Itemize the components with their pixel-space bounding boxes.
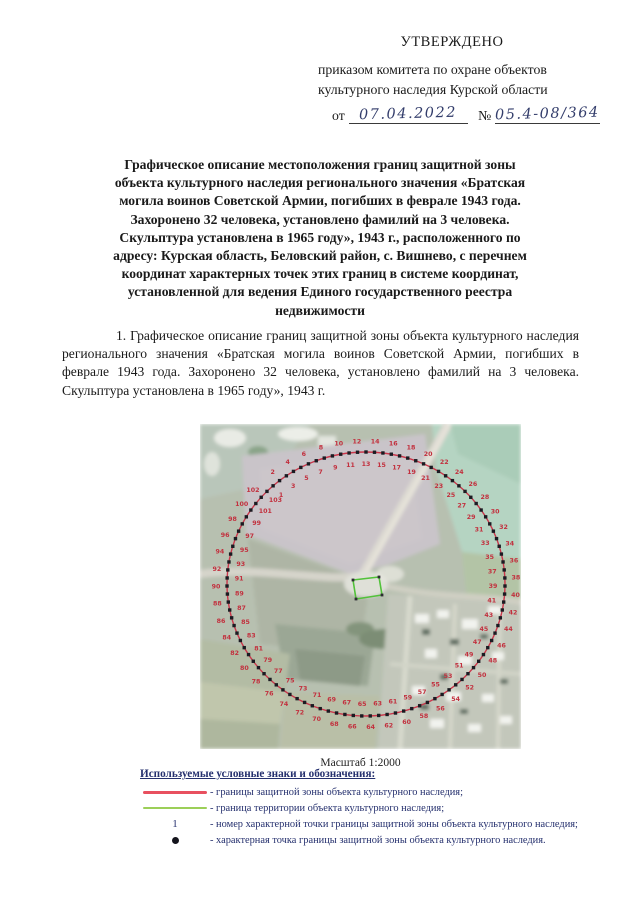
svg-text:60: 60 [402, 719, 411, 726]
svg-text:77: 77 [274, 668, 283, 675]
svg-text:16: 16 [389, 441, 398, 448]
svg-text:41: 41 [487, 598, 496, 605]
svg-text:4: 4 [286, 459, 291, 466]
legend-item-label: - границы защитной зоны объекта культурн… [210, 787, 463, 798]
svg-text:74: 74 [279, 701, 288, 708]
approval-date-handwritten: 07.04.2022 [359, 105, 457, 124]
legend-item-label: - номер характерной точки границы защитн… [210, 819, 578, 830]
svg-text:45: 45 [479, 626, 488, 633]
svg-text:68: 68 [330, 721, 339, 728]
svg-text:35: 35 [485, 554, 494, 561]
approval-order-line-2: культурного наследия Курской области [318, 80, 600, 100]
svg-text:52: 52 [465, 685, 474, 692]
svg-text:39: 39 [489, 583, 498, 590]
svg-text:90: 90 [212, 583, 221, 590]
title-line: координат характерных точек этих границ … [64, 265, 576, 283]
svg-text:15: 15 [377, 462, 386, 469]
svg-text:21: 21 [421, 475, 430, 482]
svg-text:6: 6 [302, 451, 307, 458]
approval-number-label: № [478, 108, 491, 124]
svg-text:17: 17 [392, 465, 401, 472]
svg-text:33: 33 [481, 540, 490, 547]
svg-text:12: 12 [352, 438, 361, 445]
svg-text:44: 44 [504, 626, 513, 633]
svg-text:31: 31 [475, 527, 484, 534]
svg-text:13: 13 [362, 461, 371, 468]
approval-block: УТВЕРЖДЕНО приказом комитета по охране о… [318, 34, 600, 124]
legend-item-zone-boundary: - границы защитной зоны объекта культурн… [140, 784, 610, 800]
svg-text:51: 51 [455, 663, 464, 670]
svg-text:40: 40 [511, 592, 520, 599]
svg-text:87: 87 [237, 605, 246, 612]
svg-text:76: 76 [265, 690, 274, 697]
svg-text:101: 101 [259, 508, 272, 515]
svg-text:102: 102 [246, 487, 259, 494]
svg-text:85: 85 [241, 619, 250, 626]
title-line: Скульптура установлена в 1965 году», 194… [64, 229, 576, 247]
document-title: Графическое описание местоположения гран… [64, 156, 576, 320]
paragraph-1: 1. Графическое описание границ защитной … [62, 327, 579, 400]
territory-line-sample [143, 807, 207, 810]
svg-text:27: 27 [457, 502, 466, 509]
legend-item-territory-boundary: - граница территории объекта культурного… [140, 800, 610, 816]
svg-text:32: 32 [499, 524, 508, 531]
svg-text:66: 66 [348, 724, 357, 731]
svg-text:8: 8 [319, 445, 323, 452]
title-line: Графическое описание местоположения гран… [64, 156, 576, 174]
svg-text:99: 99 [252, 520, 261, 527]
document-page: УТВЕРЖДЕНО приказом комитета по охране о… [0, 0, 640, 905]
svg-text:49: 49 [465, 651, 474, 658]
legend-item-label: - граница территории объекта культурного… [210, 803, 444, 814]
approval-date-field: 07.04.2022 [349, 107, 468, 124]
svg-text:54: 54 [451, 696, 460, 703]
svg-text:92: 92 [212, 566, 221, 573]
svg-text:103: 103 [269, 497, 282, 504]
svg-text:53: 53 [444, 673, 453, 680]
svg-text:43: 43 [484, 612, 493, 619]
title-line: Захоронено 32 человека, установлено фами… [64, 211, 576, 229]
approval-from-label: от [332, 108, 345, 124]
territory-line-symbol [140, 807, 210, 810]
zone-line-symbol [140, 791, 210, 794]
svg-text:2: 2 [271, 469, 275, 476]
svg-text:62: 62 [384, 722, 393, 729]
svg-text:80: 80 [240, 665, 249, 672]
approval-fields: от 07.04.2022 № 05.4-08/364 [318, 107, 600, 124]
svg-text:100: 100 [235, 501, 249, 508]
svg-text:48: 48 [488, 658, 497, 665]
svg-text:29: 29 [467, 514, 476, 521]
svg-text:50: 50 [478, 672, 487, 679]
title-line: адресу: Курская область, Беловский район… [64, 247, 576, 265]
svg-text:34: 34 [505, 540, 514, 547]
svg-text:18: 18 [407, 445, 416, 452]
title-line: могила воинов Советской Армии, погибших … [64, 192, 576, 210]
svg-text:26: 26 [468, 481, 477, 488]
svg-text:3: 3 [291, 483, 295, 490]
svg-text:19: 19 [407, 469, 416, 476]
zone-line-sample [143, 791, 207, 794]
legend-item-point-dot: - характерная точка границы защитной зон… [140, 832, 610, 848]
svg-text:20: 20 [424, 451, 433, 458]
legend-title: Используемые условные знаки и обозначени… [140, 768, 610, 780]
svg-text:67: 67 [342, 700, 351, 707]
legend-item-label: - характерная точка границы защитной зон… [210, 835, 546, 846]
svg-text:96: 96 [221, 532, 230, 539]
svg-text:64: 64 [366, 724, 375, 731]
approval-number-handwritten: 05.4-08/364 [495, 105, 600, 124]
svg-text:93: 93 [236, 561, 245, 568]
svg-text:89: 89 [235, 590, 244, 597]
svg-text:86: 86 [217, 618, 226, 625]
svg-text:22: 22 [440, 459, 449, 466]
svg-text:95: 95 [240, 547, 249, 554]
point-dot-sample [172, 837, 179, 844]
svg-text:56: 56 [436, 705, 445, 712]
svg-text:46: 46 [497, 642, 506, 649]
svg-text:98: 98 [228, 516, 237, 523]
approval-order-line-1: приказом комитета по охране объектов [318, 60, 600, 80]
svg-text:63: 63 [373, 701, 382, 708]
point-number-symbol: 1 [140, 819, 210, 830]
svg-text:10: 10 [334, 441, 343, 448]
svg-text:11: 11 [346, 462, 355, 469]
svg-text:36: 36 [510, 557, 519, 564]
svg-text:14: 14 [371, 438, 380, 445]
approval-title: УТВЕРЖДЕНО [318, 34, 586, 51]
title-line: недвижимости [64, 302, 576, 320]
title-line: установленной для ведения Единого госуда… [64, 283, 576, 301]
svg-text:5: 5 [304, 475, 308, 482]
svg-text:61: 61 [389, 698, 398, 705]
svg-text:9: 9 [333, 465, 337, 472]
svg-text:65: 65 [358, 701, 367, 708]
approval-number-field: 05.4-08/364 [495, 107, 600, 124]
svg-text:58: 58 [420, 713, 429, 720]
site-map: 1234567891011121314151617181920212223242… [200, 424, 521, 749]
svg-text:88: 88 [213, 601, 222, 608]
svg-text:24: 24 [455, 469, 464, 476]
svg-text:70: 70 [312, 716, 321, 723]
svg-text:97: 97 [245, 533, 254, 540]
svg-text:23: 23 [434, 483, 443, 490]
legend: Используемые условные знаки и обозначени… [140, 768, 610, 848]
point-number-sample: 1 [172, 819, 178, 830]
svg-text:82: 82 [230, 650, 239, 657]
svg-text:25: 25 [447, 492, 456, 499]
svg-text:78: 78 [252, 678, 261, 685]
svg-text:81: 81 [254, 645, 263, 652]
svg-text:91: 91 [235, 576, 244, 583]
svg-text:38: 38 [511, 575, 520, 582]
svg-text:37: 37 [488, 568, 497, 575]
svg-text:75: 75 [286, 677, 295, 684]
svg-text:79: 79 [263, 657, 272, 664]
svg-text:30: 30 [491, 508, 500, 515]
legend-item-point-number: 1 - номер характерной точки границы защи… [140, 816, 610, 832]
point-dot-symbol [140, 837, 210, 844]
svg-text:55: 55 [431, 682, 440, 689]
svg-text:42: 42 [509, 609, 518, 616]
svg-text:73: 73 [299, 685, 308, 692]
svg-text:69: 69 [327, 697, 336, 704]
svg-text:71: 71 [313, 692, 322, 699]
svg-text:94: 94 [216, 549, 225, 556]
svg-text:72: 72 [295, 709, 304, 716]
svg-text:47: 47 [473, 639, 482, 646]
svg-text:7: 7 [318, 469, 322, 476]
title-line: объекта культурного наследия регионально… [64, 174, 576, 192]
svg-text:59: 59 [403, 694, 412, 701]
svg-text:57: 57 [418, 689, 427, 696]
svg-text:84: 84 [222, 634, 231, 641]
svg-text:83: 83 [247, 633, 256, 640]
svg-text:28: 28 [481, 494, 490, 501]
